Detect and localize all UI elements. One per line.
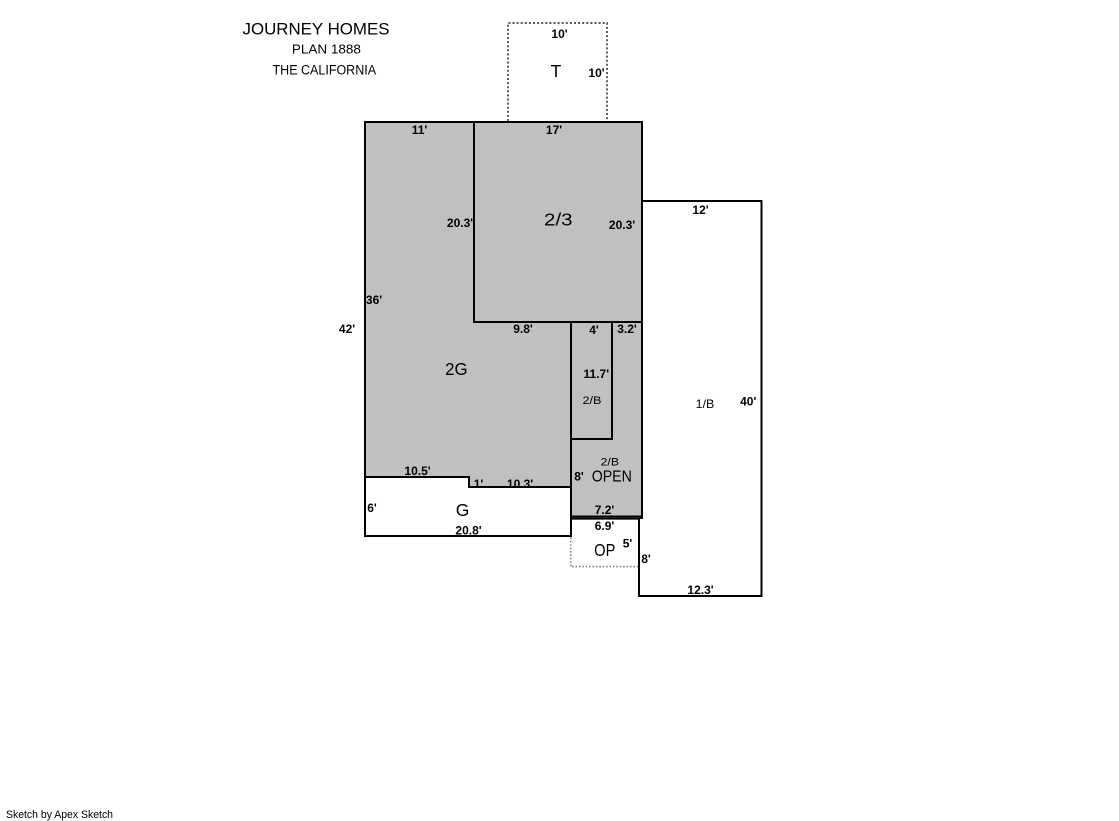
- svg-text:1': 1': [474, 477, 484, 491]
- svg-text:THE CALIFORNIA: THE CALIFORNIA: [273, 63, 377, 78]
- svg-text:T: T: [551, 61, 562, 81]
- svg-text:6.9': 6.9': [595, 519, 615, 533]
- svg-text:42': 42': [339, 322, 355, 336]
- svg-text:12.3': 12.3': [687, 583, 713, 597]
- svg-text:PLAN 1888: PLAN 1888: [292, 41, 361, 56]
- svg-text:10.5': 10.5': [404, 464, 430, 478]
- svg-text:OPEN: OPEN: [592, 468, 632, 485]
- svg-text:10': 10': [551, 27, 567, 41]
- svg-text:40': 40': [740, 394, 756, 408]
- svg-text:JOURNEY HOMES: JOURNEY HOMES: [243, 21, 390, 39]
- svg-text:7.2': 7.2': [595, 503, 615, 517]
- svg-text:20.3': 20.3': [609, 218, 635, 232]
- svg-text:12': 12': [692, 203, 708, 217]
- svg-text:17': 17': [546, 123, 562, 137]
- svg-text:8': 8': [641, 552, 651, 566]
- svg-text:9.8': 9.8': [513, 322, 533, 336]
- svg-text:OP: OP: [594, 540, 615, 560]
- svg-text:G: G: [456, 500, 470, 520]
- svg-text:4': 4': [589, 323, 599, 337]
- svg-text:5': 5': [623, 537, 633, 551]
- svg-text:2/3: 2/3: [544, 210, 573, 230]
- svg-text:20.8': 20.8': [455, 524, 481, 538]
- svg-text:3.2': 3.2': [617, 322, 637, 336]
- svg-text:8': 8': [574, 470, 584, 484]
- svg-text:11': 11': [412, 123, 428, 137]
- svg-text:2/B: 2/B: [601, 457, 619, 469]
- svg-text:10': 10': [588, 66, 604, 80]
- svg-text:Sketch by Apex Sketch: Sketch by Apex Sketch: [6, 809, 113, 821]
- svg-text:2/B: 2/B: [583, 395, 602, 407]
- svg-text:36': 36': [366, 293, 382, 307]
- svg-text:20.3': 20.3': [447, 216, 473, 230]
- svg-text:1/B: 1/B: [696, 397, 715, 411]
- svg-text:11.7': 11.7': [584, 367, 610, 381]
- svg-text:2G: 2G: [445, 359, 468, 379]
- svg-text:6': 6': [367, 501, 377, 515]
- svg-text:10.3': 10.3': [507, 477, 533, 491]
